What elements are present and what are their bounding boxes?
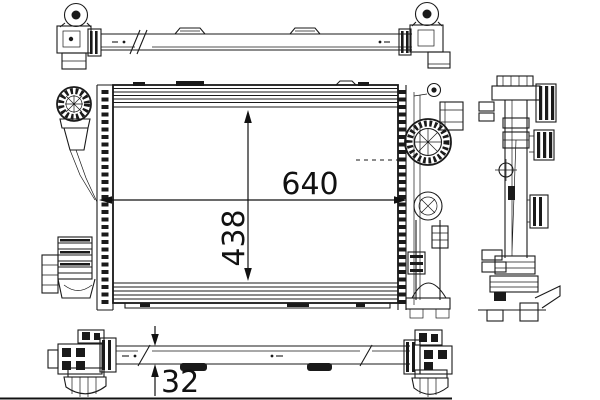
side-foot-arm <box>535 286 560 308</box>
right-lower-bracket <box>406 220 450 318</box>
bar-edges <box>101 34 412 50</box>
drawing-svg: 640 438 <box>0 0 600 400</box>
thickness-dimension-label: 32 <box>161 365 199 400</box>
right-upper-port <box>414 84 441 97</box>
mount-ring-hole <box>72 11 81 20</box>
side-dark-slot <box>508 186 515 200</box>
port-spokes <box>415 129 441 155</box>
break-mark <box>138 345 372 366</box>
arrowhead-down <box>151 334 159 346</box>
side-left-tab <box>479 102 494 111</box>
side-top-block <box>492 86 540 100</box>
top-left-mount-bracket <box>57 4 101 70</box>
mount-ring-hole <box>423 10 432 19</box>
arrowhead-up <box>151 364 159 377</box>
arrowhead-down <box>244 268 252 281</box>
bracket-clamp <box>399 29 411 55</box>
right-lower-port <box>414 192 442 220</box>
side-crosshair-hole <box>495 159 517 181</box>
top-crossmember-bar <box>101 28 412 54</box>
side-top-cap <box>497 76 533 86</box>
side-foot-assembly <box>478 250 560 321</box>
dimension-width: 640 <box>99 167 407 204</box>
filler-cap <box>57 87 97 202</box>
bracket-foot <box>428 52 450 68</box>
rubber-foot-dome <box>412 378 448 394</box>
side-view <box>478 76 560 321</box>
width-dimension-label: 640 <box>281 167 338 202</box>
core-outline <box>113 85 398 303</box>
side-lower-flange <box>527 195 548 228</box>
side-mid-flange <box>529 130 554 160</box>
lower-left-connector <box>42 237 95 298</box>
top-right-mount-bracket <box>399 3 450 69</box>
side-upper-flange <box>536 84 556 122</box>
radiator-technical-drawing: 640 438 <box>0 0 600 400</box>
bar-lower-tab <box>307 363 332 371</box>
bottom-left-mount-bracket <box>48 330 116 397</box>
top-edge-tab <box>358 82 369 86</box>
connector-ribs <box>58 243 92 273</box>
side-column <box>505 100 527 258</box>
upper-left-bracket-edge <box>70 150 95 200</box>
rubber-foot-dome <box>64 377 106 394</box>
bottom-right-mount-bracket <box>404 330 452 397</box>
bottom-tank-lines <box>113 283 398 299</box>
top-edge-tab <box>133 82 145 86</box>
top-edge-tab <box>176 81 204 86</box>
bottom-view <box>48 330 452 397</box>
arrowhead-up <box>244 110 252 123</box>
bracket-body <box>57 26 91 53</box>
bracket-body <box>410 25 443 52</box>
bracket-arch <box>412 283 446 298</box>
cap-spokes <box>65 95 83 113</box>
top-tank-lines <box>113 89 398 108</box>
dimension-height: 438 <box>217 110 252 281</box>
height-dimension-label: 438 <box>217 209 252 266</box>
bracket-clamp <box>88 29 101 56</box>
top-view <box>57 3 450 70</box>
connector-wedge <box>58 279 95 298</box>
